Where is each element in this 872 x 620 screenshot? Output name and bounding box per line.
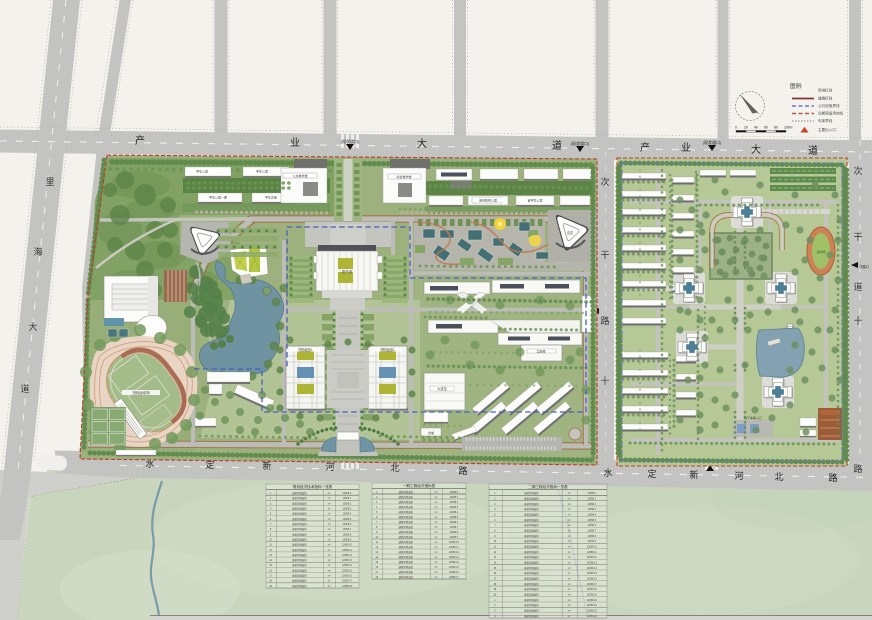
- svg-text:新: 新: [689, 469, 698, 480]
- svg-text:12658.4: 12658.4: [343, 513, 352, 516]
- svg-text:大: 大: [417, 137, 427, 150]
- svg-text:12658.18: 12658.18: [587, 588, 598, 591]
- svg-text:m²: m²: [328, 497, 331, 500]
- svg-text:产: 产: [640, 141, 650, 154]
- svg-text:建筑用地面积: 建筑用地面积: [524, 523, 539, 527]
- svg-text:m²: m²: [435, 516, 438, 519]
- svg-text:m²: m²: [328, 575, 331, 578]
- svg-text:20: 20: [744, 126, 748, 130]
- svg-text:建筑用地面积: 建筑用地面积: [292, 579, 307, 583]
- svg-text:(现状道口): (现状道口): [571, 140, 590, 146]
- svg-text:建筑用地面积: 建筑用地面积: [524, 603, 539, 607]
- svg-text:12658.14: 12658.14: [449, 561, 460, 564]
- svg-text:道: 道: [853, 281, 862, 292]
- svg-text:12658.5: 12658.5: [587, 519, 596, 522]
- svg-text:12658.11: 12658.11: [449, 546, 459, 549]
- svg-text:建筑用地面积: 建筑用地面积: [292, 558, 307, 562]
- svg-text:60: 60: [764, 126, 768, 130]
- svg-text:12658.8: 12658.8: [343, 533, 352, 536]
- svg-text:建筑用地面积: 建筑用地面积: [524, 561, 539, 565]
- svg-text:水: 水: [603, 467, 612, 478]
- svg-text:m²: m²: [328, 580, 331, 583]
- svg-text:建筑用地面积: 建筑用地面积: [524, 507, 539, 511]
- svg-text:次: 次: [600, 176, 609, 187]
- svg-text:m²: m²: [435, 556, 438, 559]
- svg-text:m²: m²: [568, 508, 571, 511]
- svg-text:大: 大: [28, 321, 37, 332]
- svg-text:12658.17: 12658.17: [342, 580, 353, 583]
- svg-text:m²: m²: [568, 562, 571, 565]
- svg-text:12658.23: 12658.23: [587, 615, 598, 618]
- svg-text:道: 道: [808, 144, 818, 157]
- svg-text:建筑用地面积: 建筑用地面积: [524, 502, 539, 506]
- svg-text:干: 干: [600, 250, 609, 260]
- svg-text:m²: m²: [328, 559, 331, 562]
- svg-text:会堂: 会堂: [567, 230, 573, 235]
- svg-text:12658.5: 12658.5: [449, 516, 458, 519]
- svg-text:建筑用地面积: 建筑用地面积: [524, 593, 539, 597]
- svg-text:大讲堂: 大讲堂: [437, 386, 447, 391]
- svg-text:建筑用地面积: 建筑用地面积: [292, 553, 307, 557]
- svg-text:建筑用地面积: 建筑用地面积: [399, 490, 414, 494]
- svg-text:m²: m²: [328, 569, 331, 572]
- svg-text:建筑用地面积: 建筑用地面积: [399, 520, 414, 524]
- svg-text:建筑用地面积: 建筑用地面积: [292, 501, 307, 505]
- svg-text:m²: m²: [328, 585, 331, 588]
- svg-text:建筑用地面积: 建筑用地面积: [399, 505, 414, 509]
- svg-text:m²: m²: [568, 492, 571, 495]
- svg-text:12658.0: 12658.0: [449, 491, 458, 494]
- svg-text:产: 产: [135, 134, 145, 147]
- svg-text:建筑用地面积: 建筑用地面积: [292, 491, 307, 495]
- svg-text:建筑用地面积: 建筑用地面积: [524, 582, 539, 586]
- svg-text:12658.1: 12658.1: [343, 497, 352, 500]
- svg-text:m²: m²: [328, 554, 331, 557]
- svg-text:m²: m²: [568, 519, 571, 522]
- svg-text:路: 路: [458, 465, 467, 476]
- svg-text:建筑用地面积: 建筑用地面积: [524, 550, 539, 554]
- svg-text:12658.2: 12658.2: [343, 502, 352, 505]
- svg-text:一期工程经济指标表: 一期工程经济指标表: [403, 483, 436, 488]
- svg-text:m²: m²: [568, 604, 571, 607]
- svg-text:建筑用地面积: 建筑用地面积: [399, 500, 414, 504]
- svg-text:综合教学楼: 综合教学楼: [396, 174, 411, 179]
- svg-text:建筑用地面积: 建筑用地面积: [399, 495, 414, 499]
- svg-text:m²: m²: [328, 502, 331, 505]
- svg-text:12658.12: 12658.12: [587, 556, 598, 559]
- svg-text:m²: m²: [435, 501, 438, 504]
- svg-text:主要出入口: 主要出入口: [818, 127, 836, 132]
- svg-text:建筑用地面积: 建筑用地面积: [399, 570, 414, 574]
- svg-text:m²: m²: [328, 544, 331, 547]
- svg-text:业: 业: [290, 137, 300, 149]
- svg-text:m²: m²: [435, 576, 438, 579]
- svg-text:建筑用地面积: 建筑用地面积: [524, 545, 539, 549]
- svg-text:m²: m²: [328, 518, 331, 521]
- svg-text:12658.0: 12658.0: [587, 492, 596, 495]
- svg-text:m²: m²: [435, 561, 438, 564]
- svg-text:建筑用地面积: 建筑用地面积: [399, 540, 414, 544]
- svg-text:m²: m²: [435, 551, 438, 554]
- svg-text:12658.9: 12658.9: [449, 536, 458, 539]
- svg-text:m²: m²: [435, 571, 438, 574]
- svg-text:12658.19: 12658.19: [587, 594, 598, 597]
- svg-text:12658.6: 12658.6: [343, 523, 352, 526]
- svg-text:建筑用地面积: 建筑用地面积: [524, 539, 539, 543]
- svg-text:12658.8: 12658.8: [449, 531, 458, 534]
- svg-text:m²: m²: [568, 556, 571, 559]
- svg-text:m²: m²: [568, 551, 571, 554]
- svg-text:大: 大: [751, 143, 761, 156]
- svg-text:北: 北: [390, 463, 399, 473]
- svg-text:十: 十: [600, 375, 609, 386]
- svg-text:12658.14: 12658.14: [587, 567, 598, 570]
- svg-text:建筑用地面积: 建筑用地面积: [524, 529, 539, 533]
- svg-text:建筑用地面积: 建筑用地面积: [399, 545, 414, 549]
- svg-text:m²: m²: [568, 583, 571, 586]
- svg-text:m²: m²: [328, 533, 331, 536]
- svg-text:建筑用地面积: 建筑用地面积: [399, 525, 414, 529]
- svg-text:河: 河: [734, 470, 743, 481]
- svg-text:远期预留用地线: 远期预留用地线: [818, 111, 844, 116]
- svg-text:12658.10: 12658.10: [587, 546, 598, 549]
- svg-text:书院组团1: 书院组团1: [298, 347, 313, 352]
- svg-text:m²: m²: [568, 503, 571, 506]
- svg-text:地下车库入口: 地下车库入口: [744, 415, 762, 420]
- svg-text:留学生公寓: 留学生公寓: [527, 197, 542, 202]
- svg-text:m²: m²: [435, 506, 438, 509]
- svg-text:建筑用地面积: 建筑用地面积: [524, 571, 539, 575]
- svg-text:12658.3: 12658.3: [587, 508, 596, 511]
- svg-text:定: 定: [647, 468, 656, 479]
- svg-text:m²: m²: [568, 588, 571, 591]
- svg-text:路: 路: [600, 315, 609, 326]
- svg-text:12658.15: 12658.15: [342, 569, 353, 572]
- svg-text:里: 里: [45, 177, 54, 187]
- svg-text:次路口: 次路口: [859, 264, 869, 269]
- svg-text:学生公寓一期: 学生公寓一期: [209, 194, 227, 199]
- svg-text:m²: m²: [435, 531, 438, 534]
- svg-text:80: 80: [774, 126, 778, 130]
- svg-text:建筑用地面积: 建筑用地面积: [292, 568, 307, 572]
- svg-text:道: 道: [552, 139, 562, 152]
- svg-text:m²: m²: [435, 496, 438, 499]
- svg-text:建筑用地面积: 建筑用地面积: [524, 566, 539, 570]
- svg-text:12658.8: 12658.8: [587, 535, 596, 538]
- svg-text:建筑用地面积: 建筑用地面积: [292, 522, 307, 526]
- svg-text:m²: m²: [568, 530, 571, 533]
- svg-text:m²: m²: [435, 521, 438, 524]
- svg-text:12658.1: 12658.1: [587, 498, 596, 501]
- svg-text:12658.10: 12658.10: [449, 541, 460, 544]
- svg-text:12658.4: 12658.4: [587, 514, 596, 517]
- svg-text:建筑用地面积: 建筑用地面积: [292, 517, 307, 521]
- svg-text:12658.11: 12658.11: [587, 551, 597, 554]
- svg-text:单身教师公寓: 单身教师公寓: [479, 197, 497, 202]
- svg-text:次: 次: [853, 165, 862, 176]
- svg-text:m²: m²: [435, 511, 438, 514]
- svg-text:12658.6: 12658.6: [587, 524, 596, 527]
- svg-text:m²: m²: [568, 514, 571, 517]
- svg-text:m²: m²: [435, 536, 438, 539]
- svg-text:40: 40: [754, 126, 758, 130]
- svg-text:建筑用地面积: 建筑用地面积: [399, 515, 414, 519]
- svg-text:路: 路: [853, 463, 862, 474]
- svg-text:建筑用地面积: 建筑用地面积: [399, 550, 414, 554]
- svg-text:建筑用地面积: 建筑用地面积: [524, 577, 539, 581]
- svg-text:12658.2: 12658.2: [587, 503, 596, 506]
- svg-text:12658.7: 12658.7: [587, 530, 596, 533]
- svg-text:业: 业: [681, 142, 691, 154]
- svg-text:m²: m²: [568, 610, 571, 613]
- svg-text:12658.16: 12658.16: [449, 571, 460, 574]
- svg-text:12658.12: 12658.12: [449, 551, 460, 554]
- svg-text:m²: m²: [435, 526, 438, 529]
- svg-text:建筑用地面积: 建筑用地面积: [292, 563, 307, 567]
- svg-text:12658.18: 12658.18: [342, 585, 353, 588]
- svg-text:(现状道口): (现状道口): [341, 138, 360, 144]
- svg-text:m²: m²: [435, 546, 438, 549]
- svg-text:12658.17: 12658.17: [587, 583, 598, 586]
- svg-text:12658.21: 12658.21: [587, 604, 598, 607]
- svg-text:道: 道: [20, 383, 29, 394]
- svg-text:公共设施界线: 公共设施界线: [818, 103, 840, 108]
- svg-text:海: 海: [33, 246, 42, 257]
- svg-text:m²: m²: [435, 566, 438, 569]
- svg-text:车库界线: 车库界线: [818, 118, 833, 123]
- svg-text:建筑用地面积: 建筑用地面积: [292, 574, 307, 578]
- svg-text:规划经济技术指标一览表: 规划经济技术指标一览表: [293, 484, 333, 489]
- svg-text:12658.7: 12658.7: [449, 526, 458, 529]
- svg-text:图书馆: 图书馆: [342, 269, 353, 274]
- svg-text:河: 河: [325, 461, 334, 472]
- svg-text:学生公寓: 学生公寓: [196, 168, 208, 173]
- svg-text:12658.11: 12658.11: [342, 549, 352, 552]
- svg-text:建筑用地面积: 建筑用地面积: [292, 507, 307, 511]
- svg-text:12658.6: 12658.6: [449, 521, 458, 524]
- svg-text:m²: m²: [328, 538, 331, 541]
- svg-text:建筑用地面积: 建筑用地面积: [524, 614, 539, 618]
- svg-text:12658.20: 12658.20: [587, 599, 598, 602]
- svg-text:路: 路: [828, 472, 837, 483]
- svg-text:书院组团2: 书院组团2: [380, 347, 395, 352]
- svg-text:m²: m²: [568, 594, 571, 597]
- svg-text:m²: m²: [568, 567, 571, 570]
- svg-text:建筑用地面积: 建筑用地面积: [524, 518, 539, 522]
- svg-text:建筑用地面积: 建筑用地面积: [292, 584, 307, 588]
- svg-text:建筑用地面积: 建筑用地面积: [524, 598, 539, 602]
- svg-text:m²: m²: [568, 535, 571, 538]
- svg-text:干: 干: [853, 232, 862, 242]
- svg-text:建筑用地面积: 建筑用地面积: [524, 609, 539, 613]
- svg-text:12658.9: 12658.9: [343, 538, 352, 541]
- svg-text:建筑用地面积: 建筑用地面积: [524, 497, 539, 501]
- svg-text:12658.13: 12658.13: [587, 562, 598, 565]
- svg-text:m²: m²: [568, 572, 571, 575]
- svg-text:m²: m²: [328, 523, 331, 526]
- svg-text:12658.4: 12658.4: [449, 511, 458, 514]
- svg-text:12658.5: 12658.5: [343, 518, 352, 521]
- svg-text:m²: m²: [568, 524, 571, 527]
- svg-text:12658.16: 12658.16: [587, 578, 598, 581]
- svg-text:建筑用地面积: 建筑用地面积: [292, 512, 307, 516]
- svg-text:m²: m²: [568, 498, 571, 501]
- svg-text:m²: m²: [328, 528, 331, 531]
- svg-text:食堂: 食堂: [428, 430, 434, 435]
- svg-text:100m: 100m: [784, 126, 793, 130]
- svg-text:m²: m²: [568, 546, 571, 549]
- svg-text:道路红线: 道路红线: [818, 96, 833, 101]
- svg-text:12658.10: 12658.10: [342, 544, 353, 547]
- svg-text:建筑用地面积: 建筑用地面积: [399, 530, 414, 534]
- svg-text:12658.0: 12658.0: [343, 492, 352, 495]
- svg-text:m²: m²: [328, 492, 331, 495]
- svg-text:m²: m²: [568, 599, 571, 602]
- svg-text:建筑用地面积: 建筑用地面积: [399, 555, 414, 559]
- svg-text:12658.22: 12658.22: [587, 610, 598, 613]
- svg-text:m²: m²: [435, 491, 438, 494]
- svg-text:建筑用地面积: 建筑用地面积: [524, 534, 539, 538]
- svg-text:12658.12: 12658.12: [342, 554, 353, 557]
- svg-text:12658.13: 12658.13: [342, 559, 353, 562]
- svg-text:建筑用地面积: 建筑用地面积: [399, 560, 414, 564]
- svg-text:建筑用地面积: 建筑用地面积: [292, 548, 307, 552]
- svg-text:12658.13: 12658.13: [449, 556, 460, 559]
- svg-text:建筑用地面积: 建筑用地面积: [292, 527, 307, 531]
- svg-text:12658.15: 12658.15: [449, 566, 460, 569]
- svg-text:0: 0: [735, 126, 737, 130]
- svg-text:运动场: 运动场: [816, 249, 825, 254]
- svg-text:12658.1: 12658.1: [449, 496, 458, 499]
- svg-text:建筑用地面积: 建筑用地面积: [399, 535, 414, 539]
- svg-text:建筑用地面积: 建筑用地面积: [292, 537, 307, 541]
- svg-text:m²: m²: [568, 540, 571, 543]
- svg-text:建筑用地面积: 建筑用地面积: [399, 565, 414, 569]
- svg-text:建筑用地面积: 建筑用地面积: [292, 543, 307, 547]
- svg-text:m²: m²: [328, 508, 331, 511]
- svg-text:(现状道口): (现状道口): [703, 139, 722, 145]
- svg-text:建筑用地面积: 建筑用地面积: [292, 496, 307, 500]
- svg-text:12658.14: 12658.14: [342, 564, 353, 567]
- svg-text:十: 十: [853, 315, 862, 326]
- svg-text:m²: m²: [435, 541, 438, 544]
- svg-text:12658.3: 12658.3: [449, 506, 458, 509]
- svg-text:建筑用地面积: 建筑用地面积: [399, 510, 414, 514]
- svg-text:学生公寓: 学生公寓: [256, 168, 268, 173]
- svg-text:m²: m²: [328, 564, 331, 567]
- svg-text:12658.9: 12658.9: [587, 540, 596, 543]
- svg-text:12658.3: 12658.3: [343, 508, 352, 511]
- svg-text:建筑用地面积: 建筑用地面积: [399, 575, 414, 579]
- svg-text:实验楼: 实验楼: [536, 349, 545, 354]
- svg-text:m²: m²: [328, 549, 331, 552]
- svg-text:北: 北: [774, 472, 783, 482]
- svg-text:建筑用地面积: 建筑用地面积: [524, 555, 539, 559]
- svg-text:m²: m²: [328, 513, 331, 516]
- svg-text:田径运动场: 田径运动场: [133, 390, 151, 395]
- svg-text:建筑用地面积: 建筑用地面积: [524, 587, 539, 591]
- svg-text:m²: m²: [568, 578, 571, 581]
- svg-text:二期工程经济指标一览表: 二期工程经济指标一览表: [528, 484, 568, 489]
- svg-text:建筑用地面积: 建筑用地面积: [524, 491, 539, 495]
- svg-text:12658.2: 12658.2: [449, 501, 458, 504]
- svg-text:12658.15: 12658.15: [587, 572, 598, 575]
- svg-text:12658.16: 12658.16: [342, 575, 353, 578]
- svg-text:建筑用地面积: 建筑用地面积: [524, 513, 539, 517]
- svg-text:图例:: 图例:: [790, 82, 803, 90]
- svg-text:用地红线: 用地红线: [818, 88, 833, 93]
- svg-text:m²: m²: [568, 615, 571, 618]
- svg-text:学生食堂: 学生食堂: [265, 194, 277, 199]
- svg-text:12658.7: 12658.7: [343, 528, 352, 531]
- svg-text:建筑用地面积: 建筑用地面积: [292, 532, 307, 536]
- svg-text:12658.17: 12658.17: [449, 576, 460, 579]
- svg-text:公共教学楼: 公共教学楼: [292, 173, 307, 178]
